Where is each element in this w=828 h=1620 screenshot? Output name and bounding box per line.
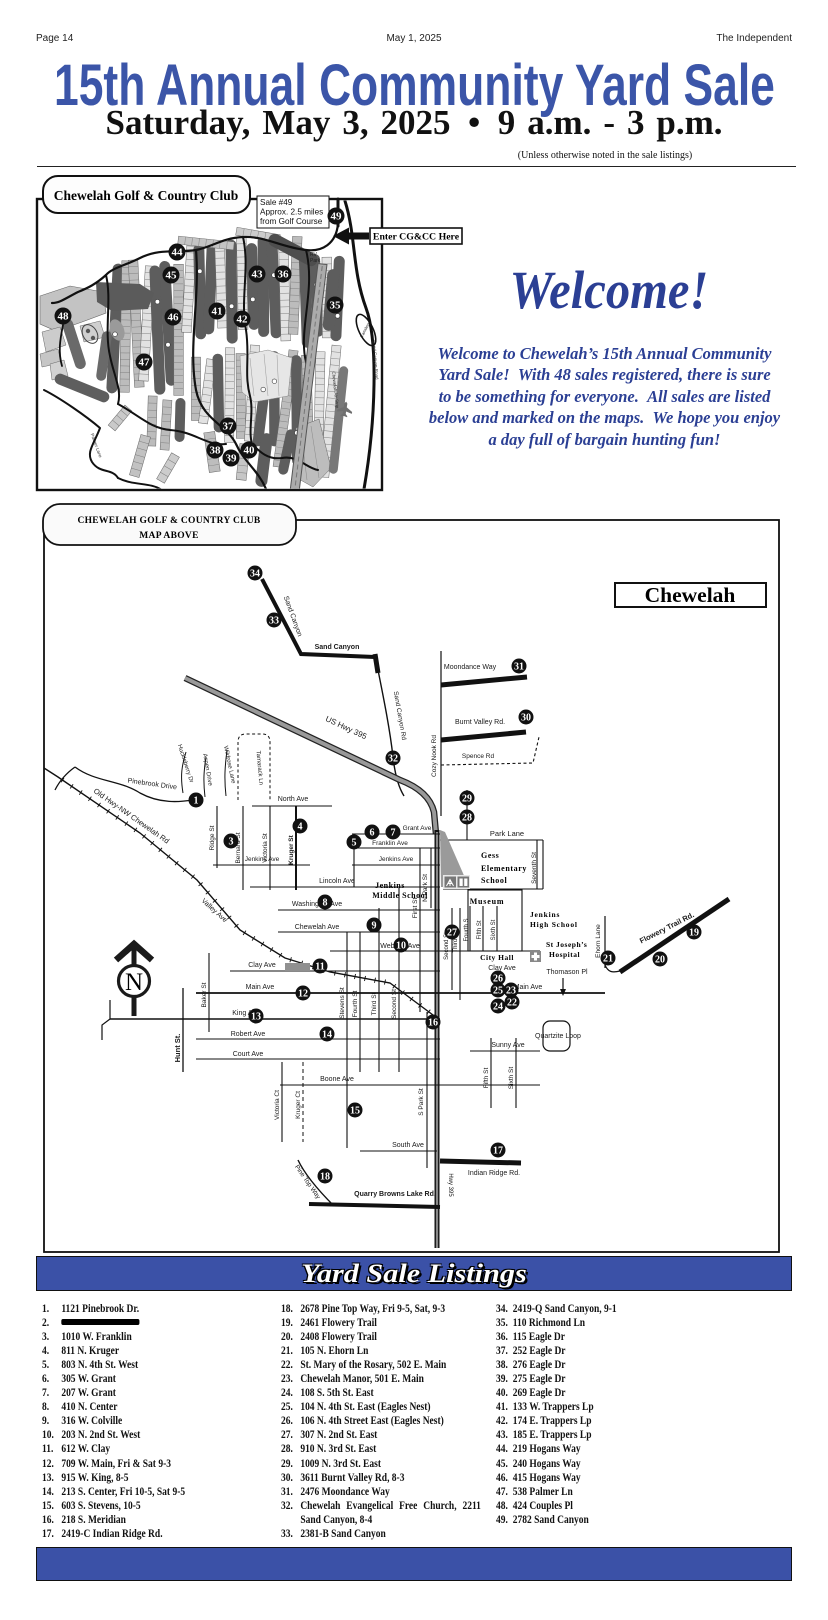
- svg-text:Victoria St: Victoria St: [262, 833, 269, 863]
- svg-text:46: 46: [168, 312, 180, 324]
- svg-text:from Golf Course: from Golf Course: [260, 217, 323, 226]
- svg-text:11: 11: [315, 961, 324, 972]
- svg-text:35: 35: [330, 300, 342, 312]
- svg-text:25: 25: [493, 985, 503, 996]
- svg-text:39: 39: [226, 453, 238, 465]
- svg-text:42: 42: [237, 314, 249, 326]
- svg-text:Jenkins: Jenkins: [530, 910, 560, 919]
- svg-text:13: 13: [251, 1011, 261, 1022]
- svg-text:Kruger St: Kruger St: [288, 834, 295, 864]
- svg-text:29: 29: [462, 793, 472, 804]
- svg-text:34: 34: [250, 568, 260, 579]
- svg-text:Gess: Gess: [481, 851, 499, 860]
- svg-text:Quartzite Loop: Quartzite Loop: [535, 1033, 581, 1040]
- svg-text:47: 47: [139, 357, 151, 369]
- svg-text:33: 33: [269, 615, 279, 626]
- svg-text:32: 32: [388, 753, 398, 764]
- svg-text:Park: Park: [310, 258, 321, 264]
- svg-text:Baker St: Baker St: [201, 982, 208, 1007]
- svg-text:Ehorn Lane: Ehorn Lane: [595, 924, 602, 958]
- svg-text:Boone Ave: Boone Ave: [320, 1076, 354, 1083]
- svg-text:St Joseph’s: St Joseph’s: [546, 940, 587, 949]
- svg-text:Spence Rd: Spence Rd: [462, 753, 495, 760]
- svg-text:24: 24: [493, 1001, 503, 1012]
- svg-text:Stevens St: Stevens St: [339, 987, 346, 1019]
- svg-text:Lincoln Ave: Lincoln Ave: [319, 878, 355, 885]
- svg-text:Indian Ridge Rd.: Indian Ridge Rd.: [468, 1170, 520, 1177]
- svg-text:Clay Ave: Clay Ave: [248, 962, 276, 969]
- svg-text:6: 6: [370, 827, 375, 838]
- svg-text:4: 4: [298, 821, 303, 832]
- svg-text:Thomason Pl: Thomason Pl: [546, 969, 588, 976]
- svg-text:40: 40: [244, 445, 256, 457]
- svg-text:Burnt Valley Rd.: Burnt Valley Rd.: [455, 719, 505, 726]
- svg-text:Court Ave: Court Ave: [233, 1051, 264, 1058]
- svg-text:10: 10: [396, 940, 406, 951]
- svg-text:37: 37: [223, 421, 235, 433]
- svg-text:Museum: Museum: [470, 897, 505, 906]
- svg-text:1: 1: [194, 795, 199, 806]
- svg-text:Clay Ave: Clay Ave: [488, 965, 516, 972]
- svg-text:Hunt St.: Hunt St.: [173, 1034, 182, 1063]
- svg-text:15: 15: [350, 1105, 360, 1116]
- svg-text:Victoria Ct: Victoria Ct: [274, 1090, 281, 1120]
- svg-text:Approx. 2.5 miles: Approx. 2.5 miles: [260, 208, 323, 217]
- svg-text:Enter CG&CC Here: Enter CG&CC Here: [373, 232, 460, 243]
- svg-text:Washington Ave: Washington Ave: [292, 901, 342, 908]
- svg-text:22: 22: [507, 997, 517, 1008]
- svg-text:Fourth St: Fourth St: [352, 990, 359, 1017]
- svg-text:Sale #49: Sale #49: [260, 198, 293, 207]
- svg-text:8: 8: [323, 897, 328, 908]
- svg-text:Sixth St: Sixth St: [491, 919, 497, 940]
- svg-text:School: School: [481, 876, 507, 885]
- svg-text:14: 14: [322, 1029, 332, 1040]
- svg-text:43: 43: [252, 269, 264, 281]
- svg-text:Chewelah: Chewelah: [645, 583, 736, 607]
- svg-text:Kruger Ct: Kruger Ct: [295, 1091, 302, 1119]
- svg-text:Third St: Third St: [371, 992, 378, 1015]
- svg-text:Jenkins Ave: Jenkins Ave: [379, 856, 414, 863]
- svg-text:12: 12: [298, 988, 308, 999]
- svg-text:3: 3: [229, 836, 234, 847]
- svg-text:27: 27: [447, 927, 457, 938]
- svg-text:38: 38: [210, 445, 222, 457]
- svg-text:Second St: Second St: [391, 989, 398, 1019]
- svg-text:N: N: [125, 969, 143, 996]
- svg-text:Seventh St: Seventh St: [531, 852, 538, 884]
- svg-text:Fifth St: Fifth St: [483, 1068, 490, 1089]
- svg-text:Hospital: Hospital: [549, 950, 580, 959]
- svg-text:17: 17: [493, 1145, 503, 1156]
- svg-text:26: 26: [493, 973, 503, 984]
- svg-text:Fifth St: Fifth St: [477, 920, 483, 939]
- svg-text:High School: High School: [530, 920, 578, 929]
- svg-text:9: 9: [372, 920, 377, 931]
- svg-text:Jenkins: Jenkins: [375, 881, 405, 890]
- svg-text:49: 49: [331, 211, 343, 223]
- svg-text:Main Ave: Main Ave: [246, 984, 275, 991]
- svg-text:30: 30: [521, 712, 531, 723]
- svg-text:45: 45: [166, 270, 178, 282]
- svg-text:21: 21: [603, 953, 613, 964]
- svg-text:Middle School: Middle School: [372, 891, 428, 900]
- svg-text:5: 5: [352, 837, 357, 848]
- svg-text:Quarry Browns Lake Rd.: Quarry Browns Lake Rd.: [354, 1191, 436, 1198]
- svg-text:North Ave: North Ave: [278, 796, 309, 803]
- svg-text:Grant Ave: Grant Ave: [403, 825, 432, 832]
- svg-text:23: 23: [506, 985, 516, 996]
- svg-text:CHEWELAH GOLF & COUNTRY CLUB: CHEWELAH GOLF & COUNTRY CLUB: [77, 516, 260, 526]
- svg-text:Cozy Nook Rd: Cozy Nook Rd: [431, 735, 438, 777]
- svg-text:31: 31: [514, 661, 524, 672]
- svg-text:Chewelah Golf & Country Club: Chewelah Golf & Country Club: [54, 188, 239, 203]
- svg-text:First St: First St: [412, 898, 419, 919]
- svg-text:Franklin Ave: Franklin Ave: [372, 840, 408, 847]
- svg-text:Hwy 395: Hwy 395: [447, 1173, 453, 1197]
- svg-text:Elementary: Elementary: [481, 864, 527, 873]
- svg-text:36: 36: [278, 269, 290, 281]
- svg-text:28: 28: [462, 812, 472, 823]
- svg-text:Sunny Ave: Sunny Ave: [491, 1042, 524, 1049]
- svg-text:City Hall: City Hall: [480, 953, 514, 962]
- svg-text:Chewelah Ave: Chewelah Ave: [295, 924, 340, 931]
- svg-text:South Ave: South Ave: [392, 1142, 424, 1149]
- svg-text:7: 7: [391, 827, 396, 838]
- svg-text:Robert Ave: Robert Ave: [231, 1031, 266, 1038]
- svg-text:41: 41: [212, 306, 223, 318]
- svg-text:Sixth St: Sixth St: [508, 1067, 515, 1090]
- svg-text:44: 44: [172, 247, 184, 259]
- svg-text:Park Lane: Park Lane: [490, 829, 524, 838]
- svg-text:MAP ABOVE: MAP ABOVE: [139, 531, 198, 541]
- svg-text:Fourth S: Fourth S: [464, 918, 470, 941]
- svg-text:18: 18: [320, 1171, 330, 1182]
- svg-text:16: 16: [428, 1017, 438, 1028]
- svg-text:S Park St: S Park St: [418, 1088, 425, 1116]
- svg-text:Ridge St: Ridge St: [209, 825, 216, 850]
- svg-text:48: 48: [58, 311, 70, 323]
- svg-text:20: 20: [655, 954, 665, 965]
- svg-text:Moondance Way: Moondance Way: [444, 664, 497, 671]
- svg-text:19: 19: [689, 927, 699, 938]
- svg-text:Sand Canyon: Sand Canyon: [315, 644, 360, 651]
